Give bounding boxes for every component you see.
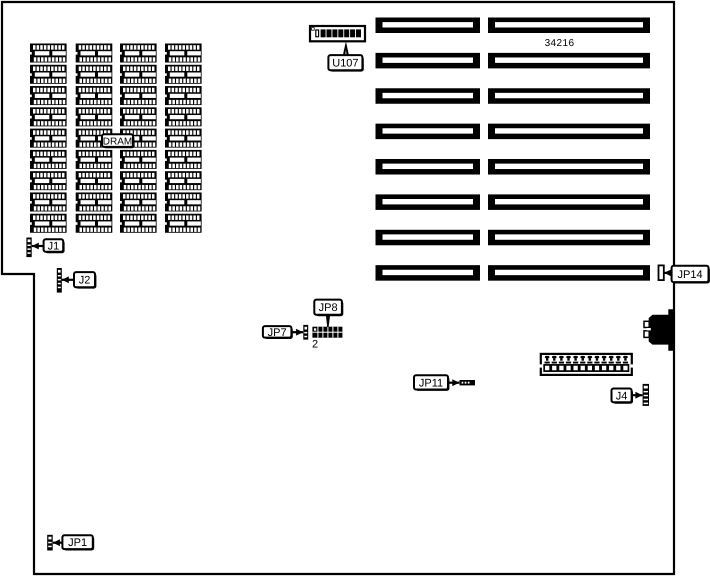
- svg-text:JP1: JP1: [68, 537, 87, 549]
- svg-text:U107: U107: [332, 58, 358, 70]
- svg-text:DRAM: DRAM: [103, 137, 132, 148]
- svg-text:JP14: JP14: [678, 269, 703, 281]
- svg-text:J4: J4: [616, 390, 628, 402]
- svg-text:J1: J1: [48, 240, 60, 252]
- svg-text:J2: J2: [79, 275, 91, 287]
- svg-text:JP7: JP7: [268, 327, 287, 339]
- svg-text:JP8: JP8: [319, 302, 338, 314]
- svg-text:2: 2: [312, 338, 318, 350]
- svg-text:34216: 34216: [545, 38, 575, 49]
- svg-text:JP11: JP11: [419, 377, 443, 389]
